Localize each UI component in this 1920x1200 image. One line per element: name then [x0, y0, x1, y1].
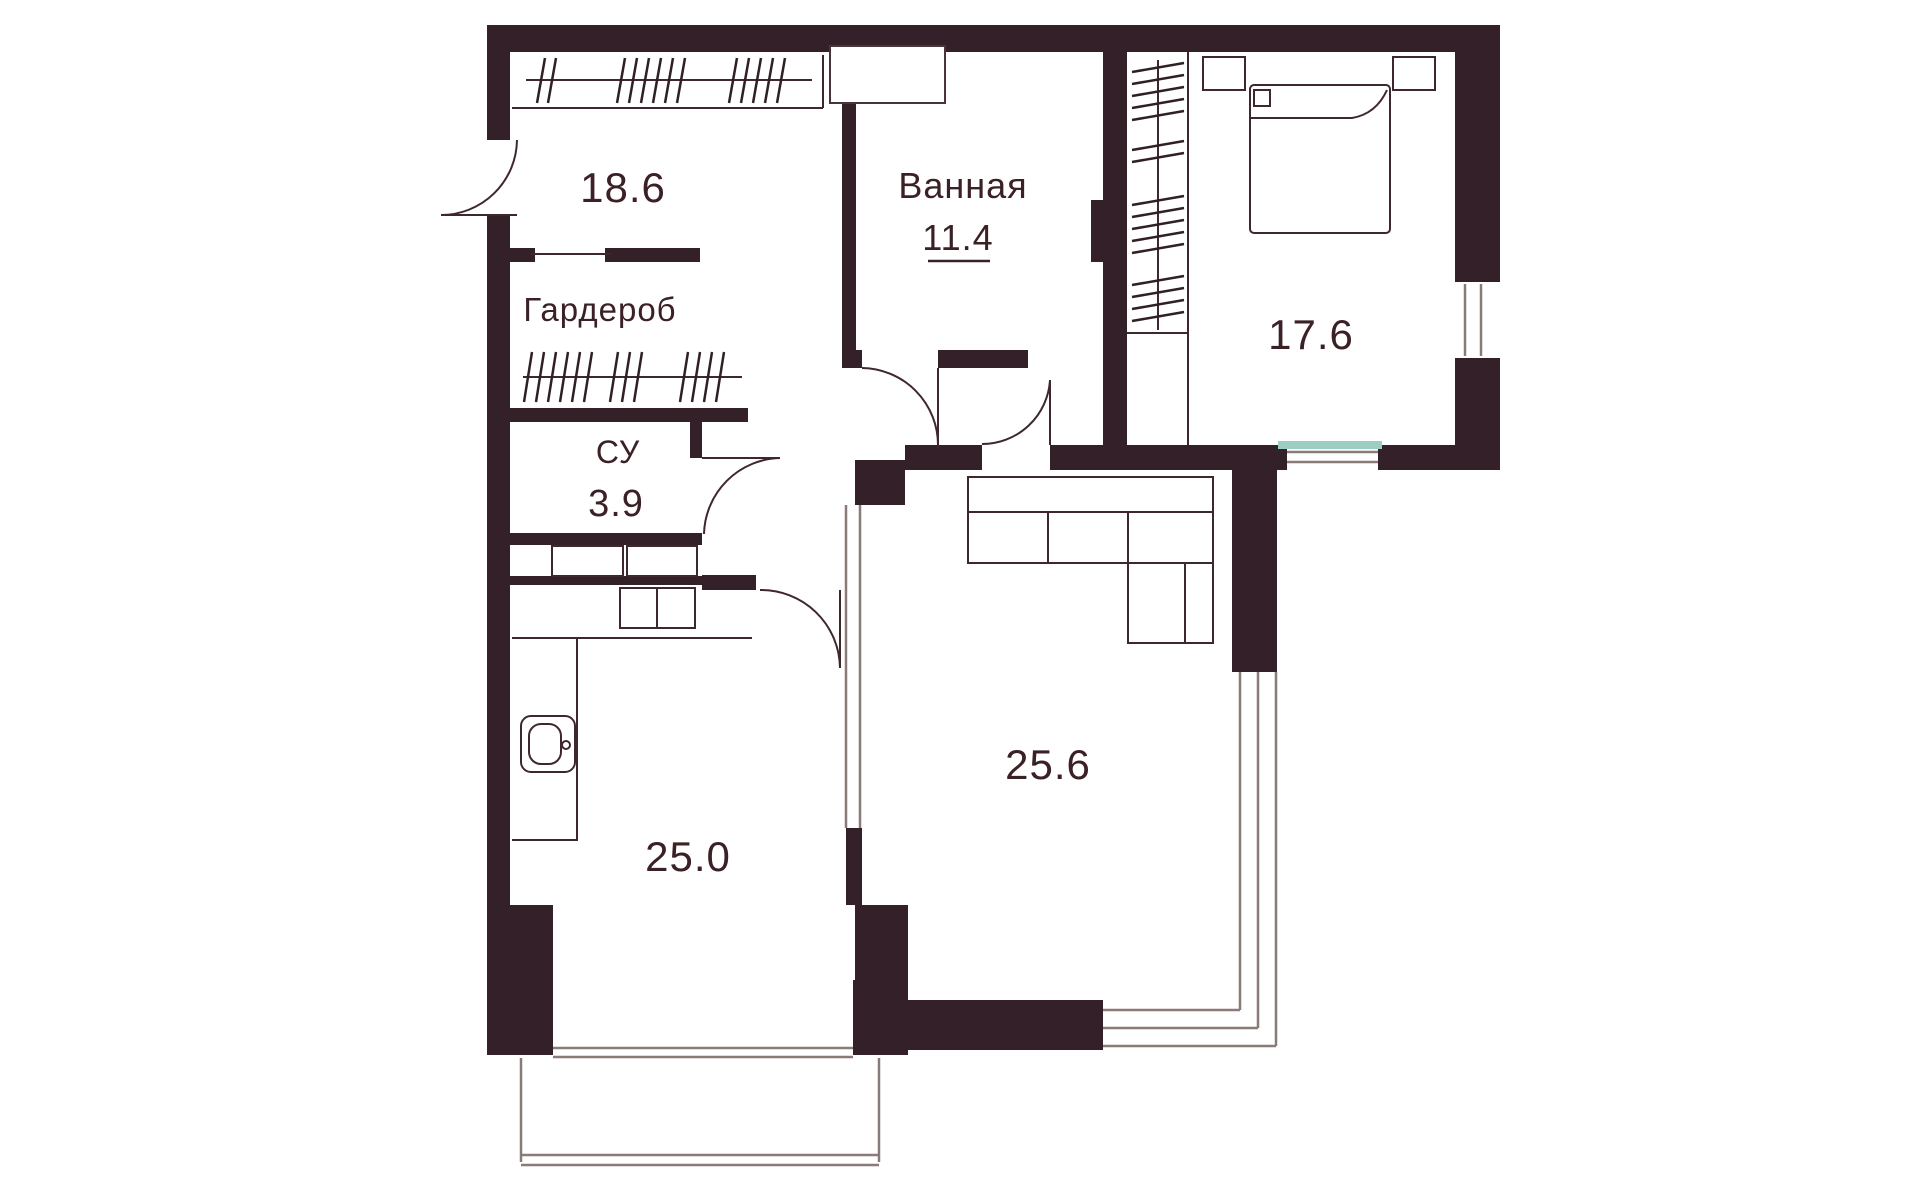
- kitchen-south-pillar: [853, 980, 908, 1055]
- wc-east-wall: [690, 422, 702, 458]
- bathroom-west-wall: [842, 100, 856, 363]
- wc-door-arc-icon: [702, 458, 780, 534]
- left-wall-main: [487, 215, 510, 1055]
- floor-plan: 18.6 Ванная 11.4 17.6 Гардероб СУ 3.9 25…: [0, 0, 1920, 1200]
- divider-wall: [846, 828, 862, 905]
- washer-icon: [552, 546, 623, 576]
- sink-icon: [521, 716, 575, 772]
- bedroom-window-sill: [1278, 441, 1382, 449]
- double-bed-icon: [1203, 57, 1435, 233]
- left-wall-upper: [487, 25, 510, 140]
- bedroom-south-wall-east: [1378, 445, 1500, 470]
- living-north-wall-east: [1050, 445, 1232, 470]
- top-wall: [487, 25, 1500, 52]
- living-east-wall: [1232, 445, 1277, 672]
- kitchen-door-arc-icon: [760, 590, 840, 668]
- wc-area-label: 3.9: [588, 483, 644, 525]
- kitchen-living-glass-divider: [846, 505, 860, 828]
- living-east-window-icon: [1240, 672, 1276, 1046]
- bathroom-south-wall-east: [938, 350, 1028, 368]
- bathroom-shaft-niche: [830, 46, 945, 103]
- bedroom-area-label: 17.6: [1268, 311, 1354, 358]
- right-wall-upper: [1455, 25, 1500, 282]
- room-door-arc-icon: [982, 380, 1050, 445]
- wardrobe-name-label: Гардероб: [523, 291, 676, 328]
- entry-hall-area-label: 18.6: [580, 164, 666, 211]
- bedroom-east-window-icon: [1465, 284, 1481, 356]
- bed-pillow: [1254, 90, 1270, 106]
- floor-plan-page: 18.6 Ванная 11.4 17.6 Гардероб СУ 3.9 25…: [0, 0, 1920, 1200]
- kitchen-door-jamb-wall: [702, 575, 756, 590]
- kitchen-south-window-icon: [553, 1048, 853, 1057]
- living-area-label: 25.6: [1005, 741, 1091, 788]
- bathroom-door-arc-icon: [862, 368, 938, 448]
- wardrobe-north-wall-east: [605, 248, 700, 262]
- wc-name-label: СУ: [596, 434, 640, 470]
- living-south-wall: [908, 1000, 1103, 1050]
- left-wall-step: [510, 905, 553, 1055]
- bedroom-south-window-icon: [1287, 452, 1378, 462]
- sofa-cushion-lines: [968, 512, 1213, 643]
- sofa-outline: [968, 477, 1213, 643]
- kitchen-area-label: 25.0: [645, 833, 731, 880]
- bathroom-area-label: 11.4: [922, 217, 993, 258]
- counter-outline: [512, 638, 752, 840]
- cabinet-icon: [620, 588, 695, 628]
- living-south-window-icon: [1103, 1010, 1276, 1046]
- living-north-wall-west: [905, 445, 982, 470]
- sink-basin: [529, 724, 561, 764]
- bathroom-wall-step: [1091, 200, 1103, 262]
- corner-sofa-icon: [968, 477, 1213, 643]
- bathroom-east-wall: [1103, 40, 1127, 445]
- wc-fixture-icon: [627, 546, 697, 576]
- bathroom-name-label: Ванная: [898, 165, 1027, 206]
- wc-niche-south-wall: [510, 576, 702, 585]
- balcony-icon: [521, 1058, 879, 1165]
- nightstand-icon: [1393, 57, 1435, 90]
- room-labels: 18.6 Ванная 11.4 17.6 Гардероб СУ 3.9 25…: [523, 164, 1353, 880]
- kitchen-counter-icon: [512, 638, 752, 840]
- sink-tap: [562, 741, 570, 749]
- divider-cap-block: [855, 460, 905, 505]
- bathroom-south-wall-west: [842, 350, 862, 368]
- bed-outline: [1250, 85, 1390, 233]
- nightstand-icon: [1203, 57, 1245, 90]
- wardrobe-south-wall: [510, 408, 748, 422]
- wc-south-wall: [510, 533, 702, 545]
- entry-door-arc-icon: [441, 140, 517, 215]
